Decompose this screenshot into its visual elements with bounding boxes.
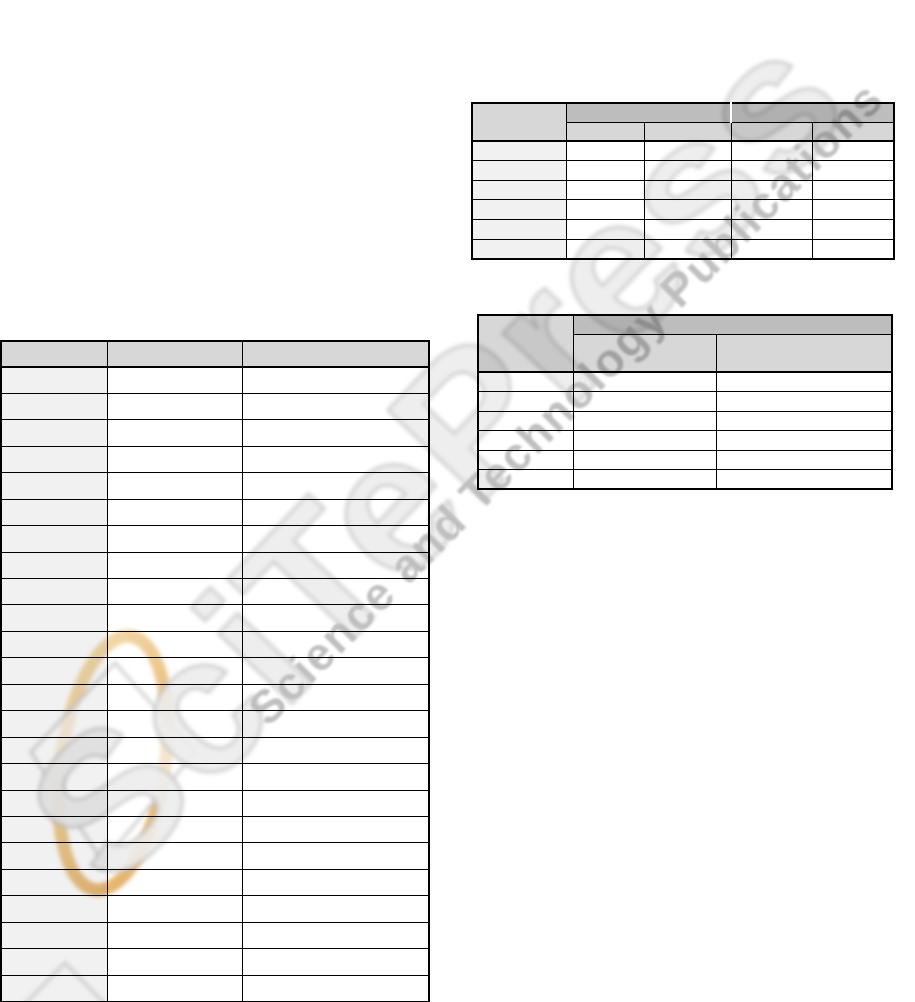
table-cell [107, 367, 242, 393]
table-row [1, 869, 429, 895]
table-row [478, 411, 892, 431]
table-cell [573, 392, 716, 412]
table-row [1, 896, 429, 922]
table-row [1, 711, 429, 737]
header-group-cell [573, 315, 892, 334]
table-cell [644, 141, 731, 161]
table-row [472, 200, 894, 220]
table-cell [566, 161, 644, 181]
table-row [1, 949, 429, 975]
middle-right-table [477, 314, 893, 490]
table-cell [107, 737, 242, 763]
table-row [472, 161, 894, 181]
table-row [1, 446, 429, 472]
table-row [478, 392, 892, 412]
table-cell [242, 393, 429, 419]
table-cell [242, 658, 429, 684]
header-sub-cell [566, 122, 644, 141]
table-cell [812, 200, 894, 220]
table-cell [242, 631, 429, 657]
table-header [1, 341, 429, 367]
table-body [478, 372, 892, 489]
table-cell [107, 552, 242, 578]
table-cell [566, 220, 644, 240]
table-cell [107, 605, 242, 631]
table-cell [472, 141, 566, 161]
table-cell [242, 499, 429, 525]
table-cell [107, 393, 242, 419]
table-cell [242, 790, 429, 816]
table-cell [731, 161, 812, 181]
table-cell [716, 411, 892, 431]
table-cell [1, 711, 107, 737]
header-sub-cell [573, 334, 716, 372]
table-cell [242, 764, 429, 790]
table-cell [472, 239, 566, 259]
table-cell [644, 220, 731, 240]
table-cell [1, 949, 107, 975]
table-cell [242, 975, 429, 1001]
table-cell [573, 470, 716, 490]
table-row [1, 790, 429, 816]
table-cell [242, 737, 429, 763]
table-cell [573, 431, 716, 451]
table-cell [716, 431, 892, 451]
header-corner-cell [478, 315, 573, 372]
table-cell [1, 975, 107, 1001]
header-sub-cell [731, 122, 812, 141]
table-row [472, 220, 894, 240]
table-cell [242, 605, 429, 631]
top-right-table [471, 102, 895, 260]
header-cell [242, 341, 429, 367]
table-cell [242, 579, 429, 605]
table-cell [107, 843, 242, 869]
table-cell [242, 816, 429, 842]
table-row [472, 180, 894, 200]
table-cell [478, 372, 573, 392]
table-cell [107, 975, 242, 1001]
table-cell [716, 372, 892, 392]
table-cell [812, 220, 894, 240]
table-cell [107, 790, 242, 816]
table-cell [1, 737, 107, 763]
table-cell [107, 499, 242, 525]
table-cell [478, 431, 573, 451]
table-cell [242, 949, 429, 975]
table-row [1, 605, 429, 631]
table-cell [107, 816, 242, 842]
table-row [1, 737, 429, 763]
header-corner-cell [472, 103, 566, 141]
table-row [1, 684, 429, 710]
table-cell [1, 446, 107, 472]
table-cell [731, 220, 812, 240]
table-body [1, 367, 429, 1002]
table-cell [566, 141, 644, 161]
table-cell [731, 141, 812, 161]
paper-page: SciTePress Science and Technology Public… [0, 0, 915, 1002]
header-sub-cell [644, 122, 731, 141]
table-cell [107, 949, 242, 975]
header-cell [107, 341, 242, 367]
table-cell [1, 658, 107, 684]
header-group-cell [731, 103, 894, 122]
table-cell [107, 526, 242, 552]
table-body [472, 141, 894, 259]
table-row [1, 631, 429, 657]
table-cell [242, 420, 429, 446]
table-cell [1, 393, 107, 419]
table-cell [107, 711, 242, 737]
table-header [478, 315, 892, 372]
table-cell [1, 499, 107, 525]
table-cell [107, 684, 242, 710]
table-cell [1, 843, 107, 869]
table-cell [242, 922, 429, 948]
table-cell [573, 372, 716, 392]
table-cell [478, 450, 573, 470]
table-row [1, 367, 429, 393]
left-table [0, 340, 430, 1002]
table-row [478, 431, 892, 451]
table-cell [731, 200, 812, 220]
table-cell [1, 631, 107, 657]
table-row [1, 499, 429, 525]
table-cell [107, 896, 242, 922]
table-row [1, 420, 429, 446]
table-cell [731, 180, 812, 200]
table-row [478, 372, 892, 392]
table-cell [644, 180, 731, 200]
table-row [1, 816, 429, 842]
table-row [478, 470, 892, 490]
table-cell [478, 411, 573, 431]
table-cell [1, 420, 107, 446]
table-cell [472, 220, 566, 240]
header-sub-cell [812, 122, 894, 141]
table-cell [1, 367, 107, 393]
table-cell [478, 392, 573, 412]
table-cell [716, 450, 892, 470]
table-cell [566, 180, 644, 200]
table-cell [107, 869, 242, 895]
table-cell [1, 816, 107, 842]
table-cell [573, 450, 716, 470]
table-row [1, 526, 429, 552]
table-cell [731, 239, 812, 259]
table-cell [566, 239, 644, 259]
table-row [1, 843, 429, 869]
table-cell [472, 161, 566, 181]
table-cell [1, 869, 107, 895]
table-row [1, 658, 429, 684]
table-cell [716, 470, 892, 490]
table-row [1, 393, 429, 419]
table-cell [1, 552, 107, 578]
table-cell [716, 392, 892, 412]
table-cell [107, 658, 242, 684]
table-cell [1, 579, 107, 605]
table-cell [242, 843, 429, 869]
table-cell [107, 922, 242, 948]
table-row [1, 579, 429, 605]
table-cell [1, 764, 107, 790]
table-cell [644, 200, 731, 220]
table-cell [812, 161, 894, 181]
table-cell [107, 420, 242, 446]
table-cell [644, 161, 731, 181]
table-header [472, 103, 894, 141]
table-row [472, 239, 894, 259]
table-row [1, 922, 429, 948]
table-cell [242, 896, 429, 922]
table-cell [566, 200, 644, 220]
header-sub-cell [716, 334, 892, 372]
table-cell [812, 141, 894, 161]
table-cell [573, 411, 716, 431]
table-cell [472, 200, 566, 220]
table-cell [478, 470, 573, 490]
header-group-cell [566, 103, 731, 122]
table-cell [242, 526, 429, 552]
table-row [1, 473, 429, 499]
table-cell [107, 579, 242, 605]
table-row [478, 450, 892, 470]
table-row [1, 975, 429, 1001]
table-cell [242, 684, 429, 710]
table-cell [107, 631, 242, 657]
table-cell [1, 790, 107, 816]
table-cell [107, 473, 242, 499]
table-cell [1, 684, 107, 710]
table-cell [644, 239, 731, 259]
table-cell [812, 180, 894, 200]
header-cell [1, 341, 107, 367]
table-cell [472, 180, 566, 200]
table-cell [242, 869, 429, 895]
table-cell [242, 367, 429, 393]
table-cell [1, 605, 107, 631]
table-cell [1, 896, 107, 922]
table-cell [242, 552, 429, 578]
table-row [1, 552, 429, 578]
table-cell [1, 473, 107, 499]
table-cell [107, 764, 242, 790]
table-cell [1, 922, 107, 948]
table-cell [812, 239, 894, 259]
table-cell [242, 446, 429, 472]
table-row [1, 764, 429, 790]
table-cell [242, 473, 429, 499]
table-cell [1, 526, 107, 552]
table-cell [107, 446, 242, 472]
table-cell [242, 711, 429, 737]
table-row [472, 141, 894, 161]
